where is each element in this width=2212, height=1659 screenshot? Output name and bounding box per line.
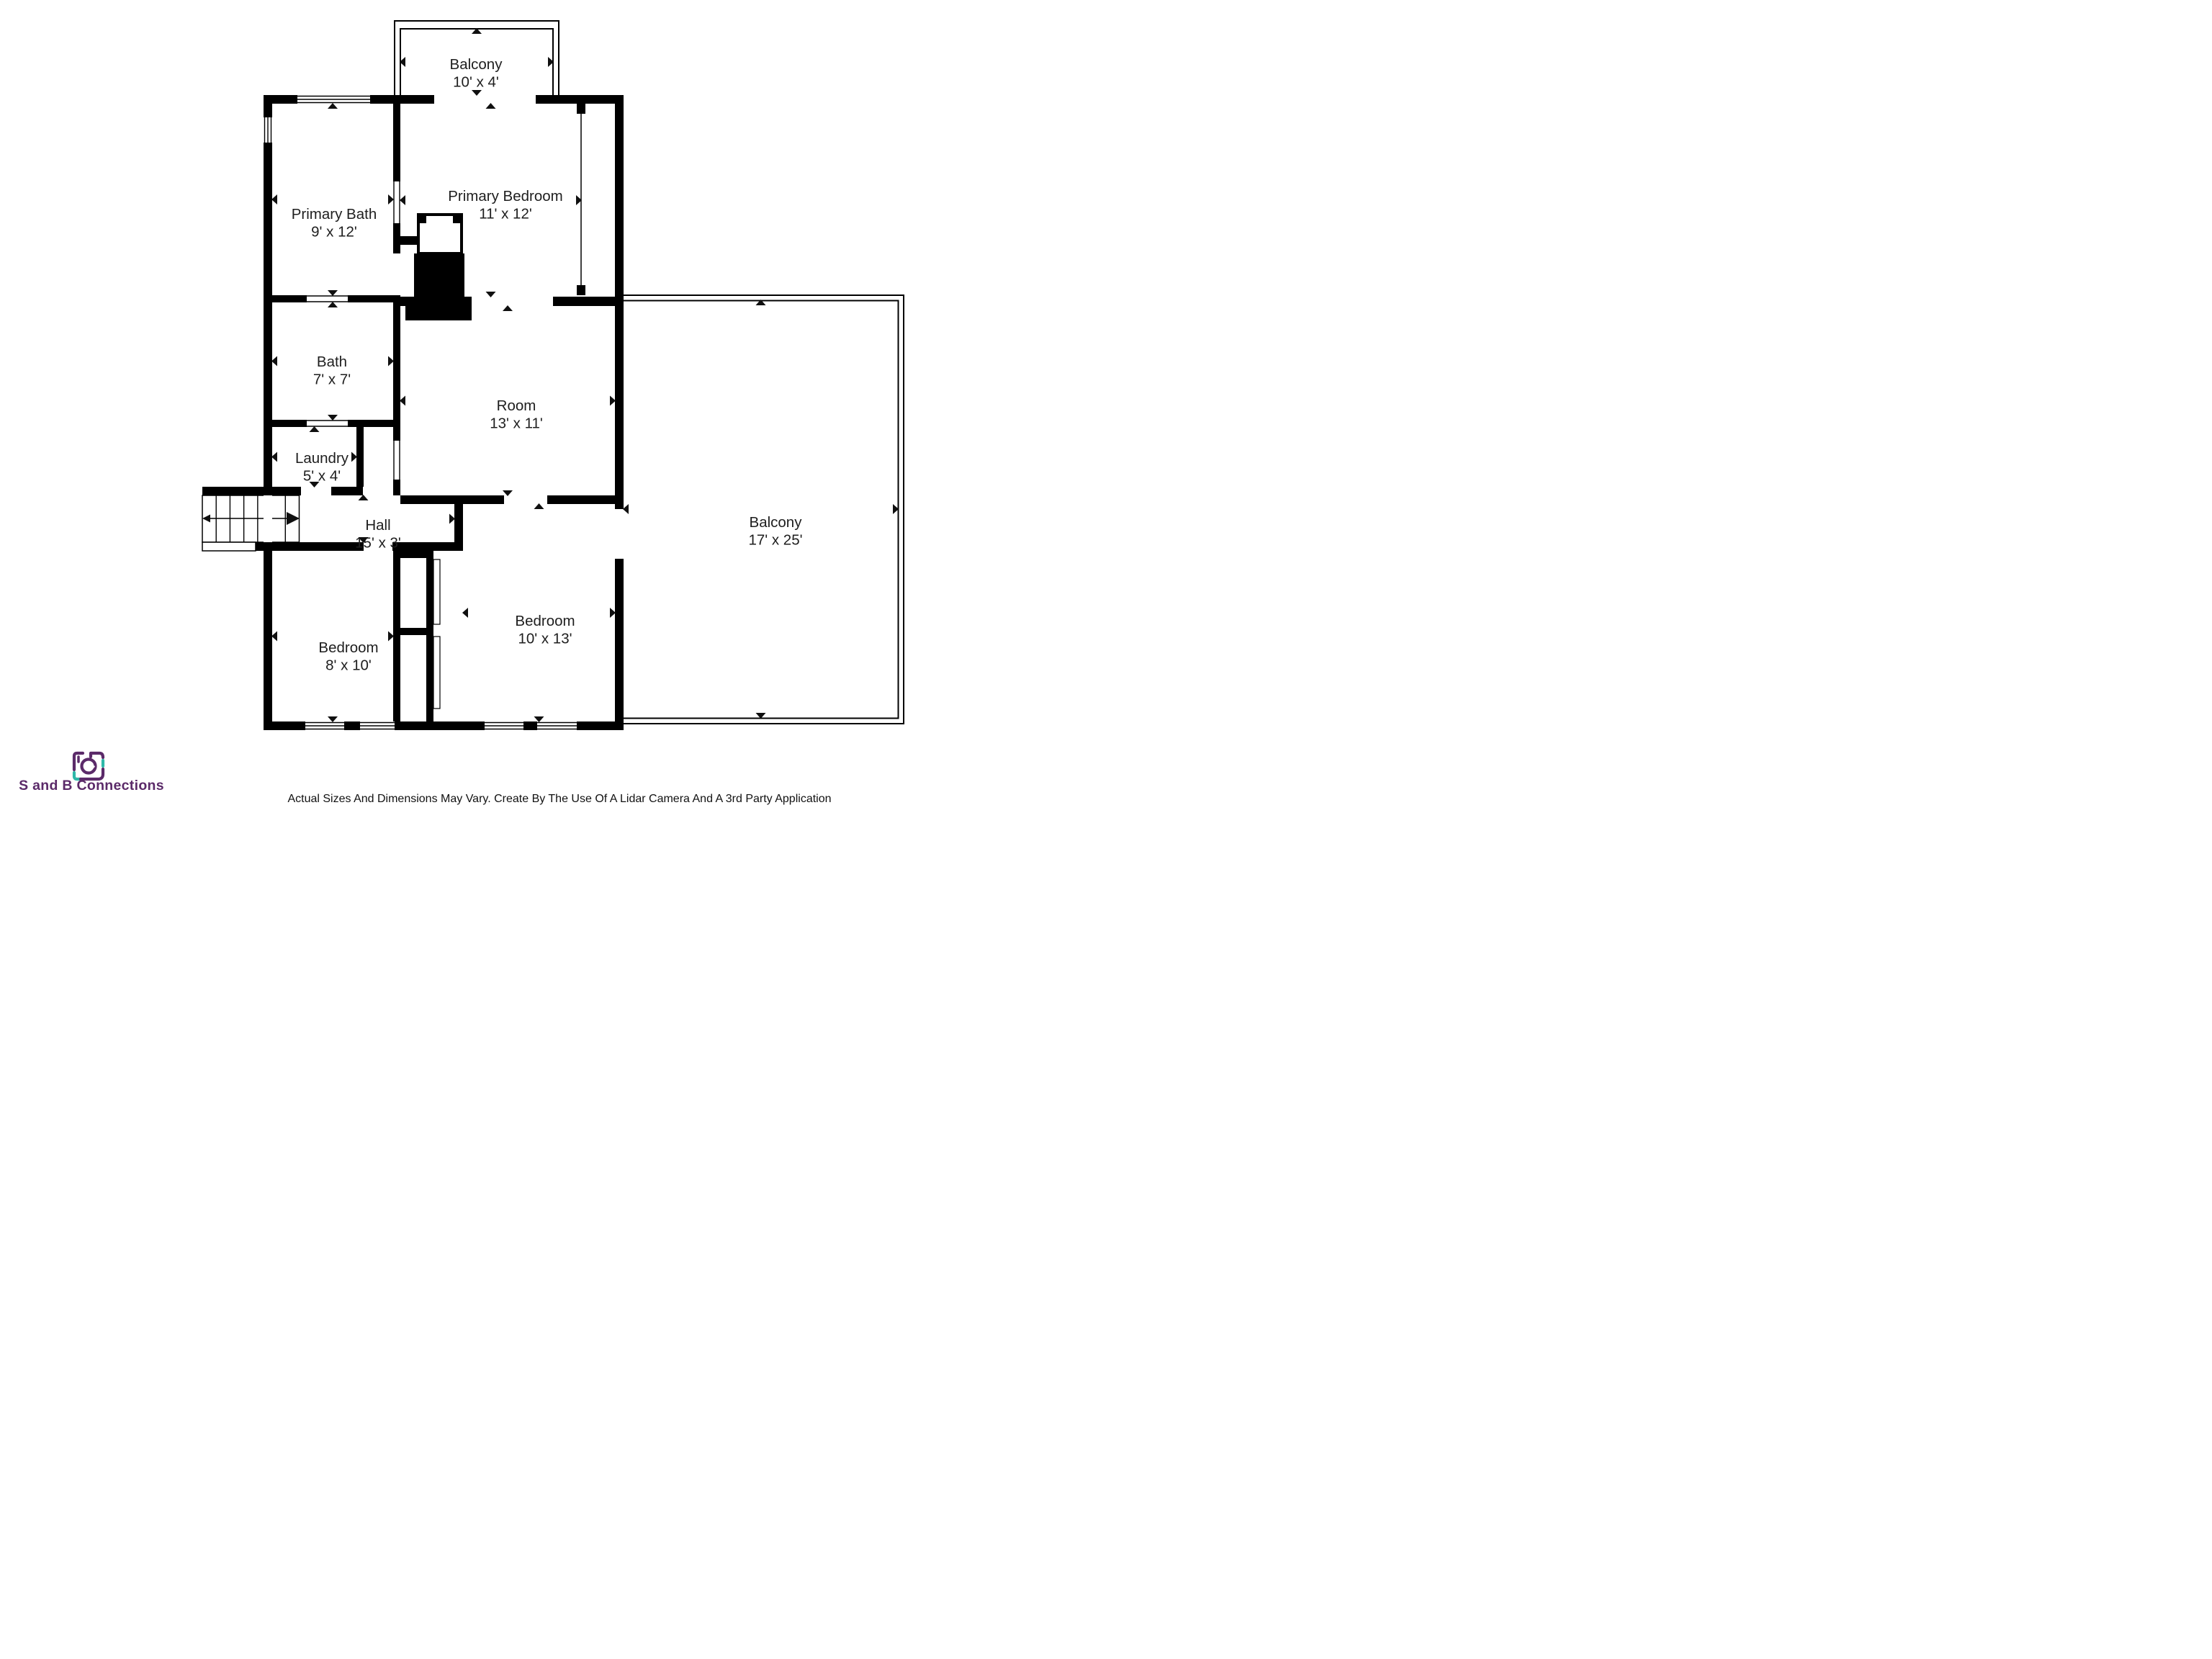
room-label: Bath [317,354,347,370]
room-dimensions: 5' x 4' [303,468,341,485]
camera-icon [74,753,103,779]
balcony-door-opening [615,509,624,559]
direction-marker-icon [462,608,468,618]
room-label: Primary Bedroom [448,188,563,204]
room-balcony-right: Balcony17' x 25' [623,300,899,719]
balcony-right-outline [624,295,904,724]
direction-marker-icon [610,608,616,618]
direction-marker-icon [472,90,482,96]
direction-marker-icon [486,103,496,109]
direction-marker-icon [388,631,394,642]
window [302,721,348,730]
room-dimensions: 13' x 11' [490,415,543,432]
room-label: Hall [365,517,390,534]
direction-marker-icon [271,356,277,367]
direction-marker-icon [534,716,544,722]
direction-marker-icon [486,292,496,297]
room-bath: Bath7' x 7' [271,302,394,421]
room-label: Bedroom [318,639,378,656]
room-label: Bedroom [515,613,575,629]
room-dimensions: 7' x 7' [313,372,351,388]
room-dimensions: 11' x 12' [479,206,532,222]
direction-marker-icon [328,302,338,307]
window [264,114,272,146]
direction-marker-icon [328,415,338,421]
direction-marker-icon [310,426,320,432]
room-balcony-top: Balcony10' x 4' [400,28,554,96]
closet-door [433,637,440,709]
balcony-door-opening [434,95,536,104]
room-bedroom-left: Bedroom8' x 10' [271,631,394,723]
room-label: Laundry [295,450,349,467]
room-laundry: Laundry5' x 4' [271,426,357,487]
direction-marker-icon [328,716,338,722]
room-room: Room13' x 11' [400,305,616,496]
direction-marker-icon [328,103,338,109]
cased-opening [393,441,400,480]
room-label: Primary Bath [292,206,377,222]
direction-marker-icon [271,452,277,462]
room-dimensions: 9' x 12' [311,224,357,240]
direction-marker-icon [310,482,320,487]
room-bedroom-right: Bedroom10' x 13' [462,503,616,722]
room-dimensions: 10' x 13' [518,631,572,647]
room-label: Balcony [450,56,503,73]
direction-marker-icon [271,631,277,642]
room-label: Room [497,397,536,414]
direction-marker-icon [271,194,277,204]
direction-marker-icon [534,503,544,509]
room-dimensions: 17' x 25' [748,532,802,549]
closet-door [433,559,440,624]
cased-opening [393,181,400,223]
window [481,721,527,730]
company-logo: S and B Connections [19,753,164,793]
cased-opening [307,420,348,427]
cased-opening [307,295,348,302]
window [356,721,398,730]
window [294,95,374,104]
room-dimensions: 10' x 4' [453,74,499,91]
direction-marker-icon [400,195,405,205]
room-primary-bath: Primary Bath9' x 12' [271,103,394,296]
window [534,721,580,730]
disclaimer-text: Actual Sizes And Dimensions May Vary. Cr… [287,793,831,805]
direction-marker-icon [359,495,369,500]
direction-marker-icon [449,514,455,524]
stair-landing [202,542,256,551]
direction-marker-icon [503,490,513,496]
company-name: S and B Connections [19,778,164,793]
direction-marker-icon [503,305,513,311]
room-label: Balcony [750,514,803,531]
direction-marker-icon [388,356,394,367]
direction-marker-icon [623,504,629,514]
direction-marker-icon [328,290,338,296]
room-dimensions: 8' x 10' [325,657,372,674]
room-dimensions: 15' x 3' [355,535,401,552]
direction-marker-icon [400,396,405,406]
direction-marker-icon [610,396,616,406]
floor-plan: Balcony10' x 4'Primary Bath9' x 12'Prima… [0,0,1106,829]
direction-marker-icon [388,194,394,204]
direction-marker-icon [351,452,357,462]
